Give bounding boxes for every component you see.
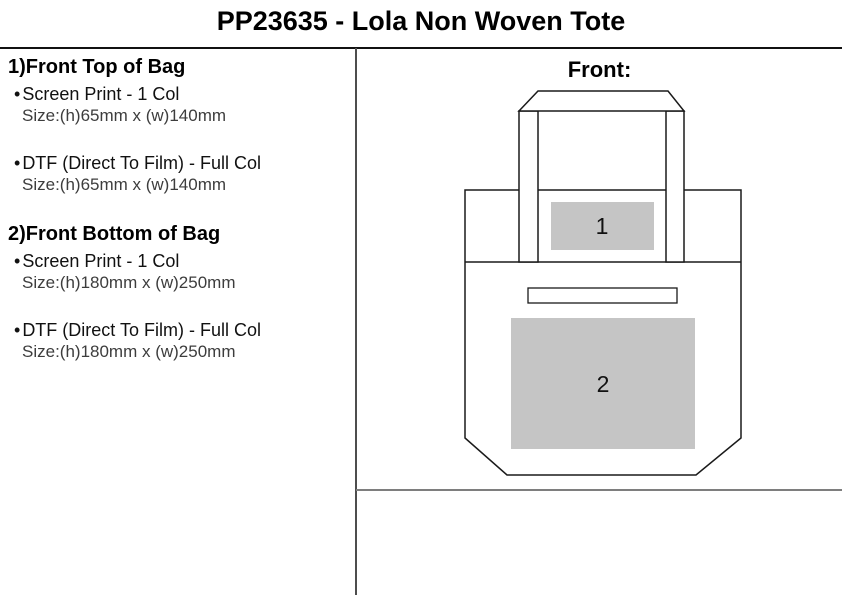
tote-bag-diagram: 1 2 xyxy=(0,0,842,595)
print-area-2-label: 2 xyxy=(597,371,610,397)
handle-strap-left xyxy=(519,111,538,262)
handle-strap-right xyxy=(666,111,684,262)
pocket-slot xyxy=(528,288,677,303)
spec-sheet-page: PP23635 - Lola Non Woven Tote 1)Front To… xyxy=(0,0,842,595)
handle-top xyxy=(519,91,684,111)
footer-rule xyxy=(356,489,842,491)
print-area-1-label: 1 xyxy=(596,213,609,239)
